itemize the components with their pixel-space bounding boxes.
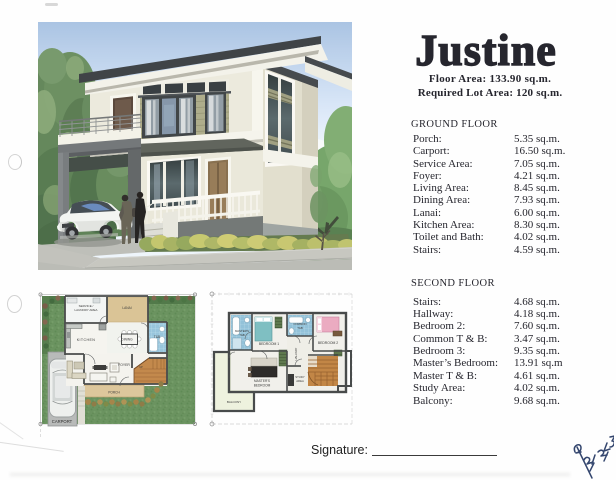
svg-text:DINING: DINING: [121, 338, 133, 342]
svg-text:T&B: T&B: [297, 326, 303, 330]
svg-text:BEDROOM 1: BEDROOM 1: [259, 342, 279, 346]
svg-text:MASTER'S: MASTER'S: [254, 379, 270, 383]
svg-text:HALLWAY: HALLWAY: [294, 347, 298, 360]
svg-text:T&B: T&B: [154, 335, 160, 339]
svg-text:FOYER: FOYER: [118, 363, 130, 367]
svg-text:CARPORT: CARPORT: [52, 419, 73, 424]
svg-text:LAUNDRY AREA: LAUNDRY AREA: [74, 308, 97, 312]
svg-text:PORCH: PORCH: [108, 391, 120, 395]
svg-text:KITCHEN: KITCHEN: [77, 338, 96, 342]
svg-text:BEDROOM: BEDROOM: [254, 384, 271, 388]
svg-text:UP: UP: [139, 365, 143, 369]
svg-text:T&B: T&B: [239, 333, 245, 337]
svg-text:LANAI: LANAI: [122, 306, 131, 310]
svg-text:BALCONY: BALCONY: [227, 400, 241, 404]
svg-text:AREA: AREA: [296, 379, 304, 383]
svg-text:BEDROOM 2: BEDROOM 2: [318, 341, 338, 345]
